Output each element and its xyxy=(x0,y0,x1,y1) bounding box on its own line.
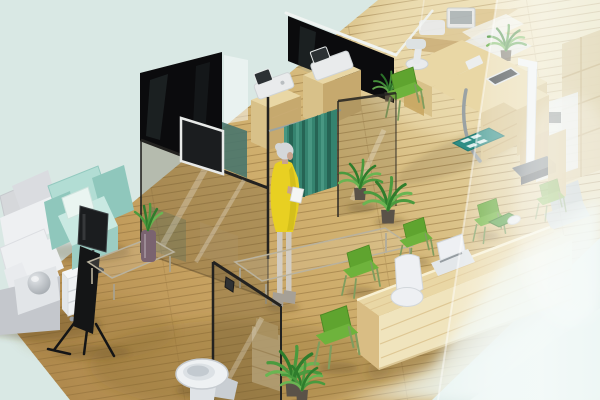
face xyxy=(287,152,293,160)
shoe xyxy=(283,290,296,304)
white-pane xyxy=(224,55,248,124)
papers xyxy=(290,187,304,203)
scene-svg xyxy=(0,0,600,400)
scene xyxy=(0,0,600,400)
office-chair-white xyxy=(391,254,423,306)
sphere-ornament xyxy=(28,272,51,295)
